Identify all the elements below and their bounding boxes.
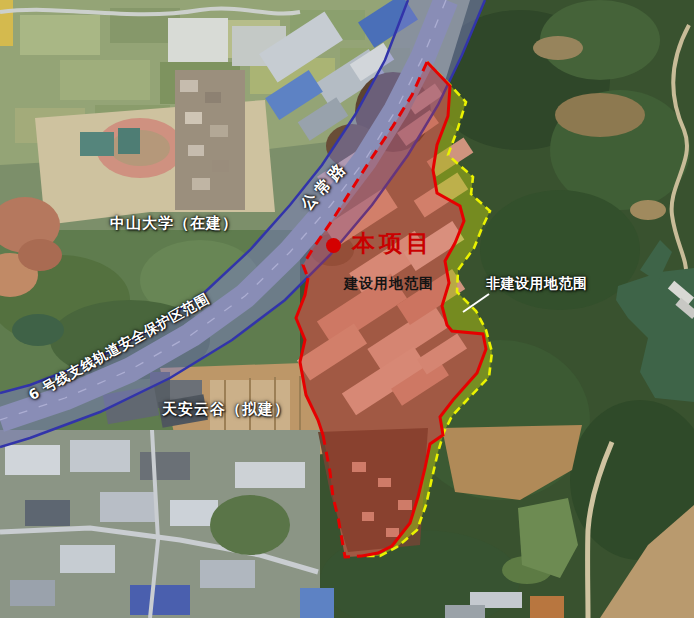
industrial-zone	[0, 430, 334, 618]
satellite-basemap	[0, 0, 694, 618]
project-location-dot	[326, 238, 341, 253]
site-map: 中山大学（在建） 天安云谷（拟建） 公常路 6 号线支线轨道安全保护区范围 本项…	[0, 0, 694, 618]
